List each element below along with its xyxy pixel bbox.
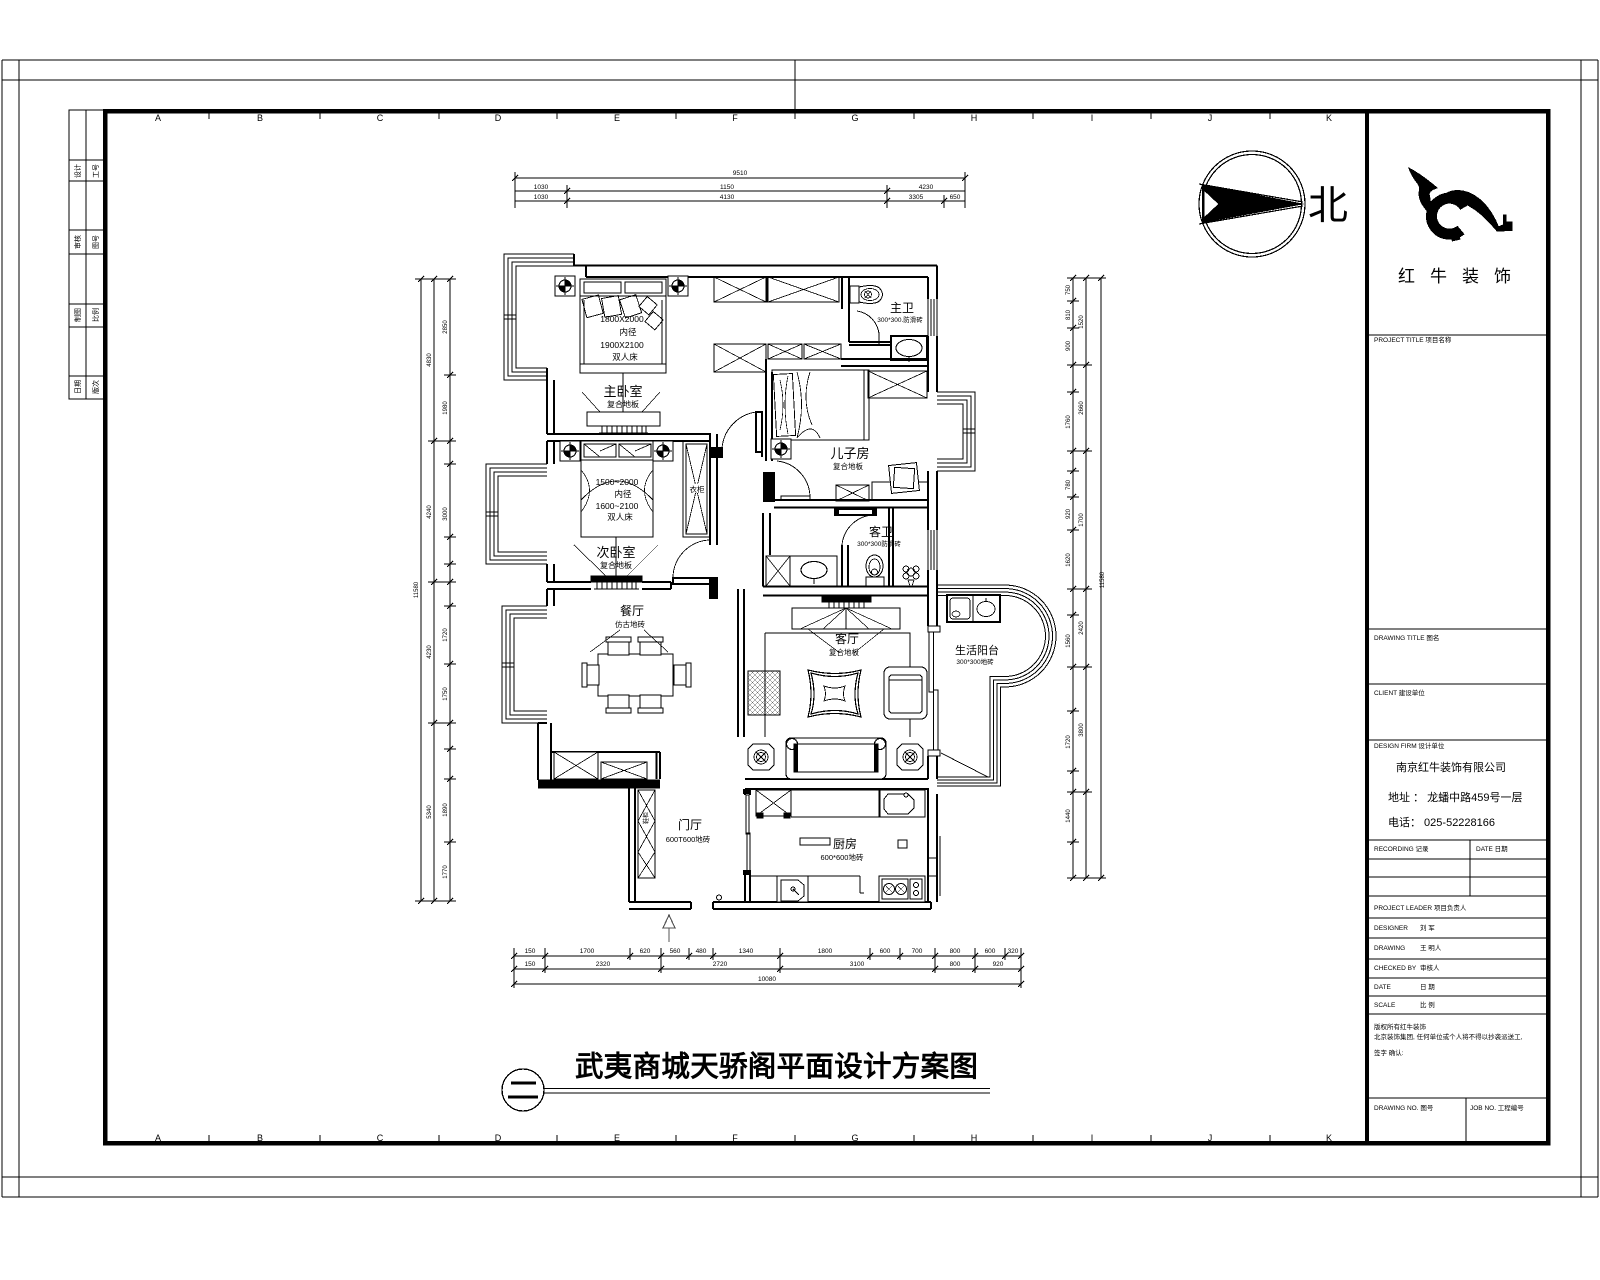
svg-text:北京装饰集团, 任何单位或个人将不得以抄袭派送工,: 北京装饰集团, 任何单位或个人将不得以抄袭派送工, — [1374, 1032, 1523, 1041]
svg-text:800: 800 — [950, 948, 961, 955]
svg-text:儿子房: 儿子房 — [830, 446, 869, 461]
svg-text:1440: 1440 — [1066, 809, 1072, 823]
svg-text:800: 800 — [950, 961, 961, 968]
svg-text:600: 600 — [880, 948, 891, 955]
svg-text:门厅: 门厅 — [678, 817, 702, 832]
svg-text:日 期: 日 期 — [1420, 983, 1435, 991]
svg-text:1700: 1700 — [580, 948, 595, 955]
svg-text:1600~2100: 1600~2100 — [596, 501, 639, 511]
svg-text:DRAWING TITLE 图名: DRAWING TITLE 图名 — [1374, 633, 1439, 642]
svg-text:1500~2000: 1500~2000 — [596, 477, 639, 487]
svg-text:1700: 1700 — [1079, 513, 1085, 527]
svg-text:600T600地砖: 600T600地砖 — [666, 834, 711, 844]
svg-text:DATE 日期: DATE 日期 — [1476, 845, 1508, 853]
svg-text:CLIENT 建设单位: CLIENT 建设单位 — [1374, 688, 1425, 697]
svg-text:H: H — [971, 113, 978, 123]
svg-text:700: 700 — [912, 948, 923, 955]
svg-text:4230: 4230 — [427, 645, 433, 659]
svg-text:K: K — [1326, 113, 1332, 123]
svg-text:签字 确认:: 签字 确认: — [1374, 1048, 1404, 1057]
svg-text:1760: 1760 — [1066, 415, 1072, 429]
svg-text:3000: 3000 — [443, 507, 449, 521]
svg-text:版权所有红牛装饰: 版权所有红牛装饰 — [1374, 1022, 1427, 1031]
svg-text:比 例: 比 例 — [1420, 1000, 1435, 1009]
svg-text:600: 600 — [985, 948, 996, 955]
svg-text:480: 480 — [696, 948, 707, 955]
svg-text:900: 900 — [1066, 340, 1072, 351]
svg-text:日期: 日期 — [74, 380, 82, 394]
svg-text:11580: 11580 — [1100, 571, 1106, 588]
svg-text:2720: 2720 — [713, 961, 728, 968]
svg-text:DRAWING: DRAWING — [1374, 945, 1405, 952]
svg-text:G: G — [851, 1133, 858, 1143]
svg-text:150: 150 — [525, 961, 536, 968]
svg-text:RECORDING 记录: RECORDING 记录 — [1374, 845, 1429, 853]
svg-text:南京红牛装饰有限公司: 南京红牛装饰有限公司 — [1396, 760, 1506, 774]
svg-text:刘 军: 刘 军 — [1420, 923, 1435, 932]
svg-text:F: F — [732, 113, 738, 123]
svg-text:11580: 11580 — [414, 581, 420, 598]
svg-text:D: D — [495, 113, 502, 123]
svg-text:1750: 1750 — [443, 687, 449, 701]
svg-text:1770: 1770 — [443, 865, 449, 879]
svg-text:C: C — [377, 113, 384, 123]
svg-text:衣柜: 衣柜 — [690, 484, 705, 494]
svg-text:主卫: 主卫 — [890, 301, 914, 315]
svg-text:1900X2100: 1900X2100 — [600, 340, 644, 350]
svg-text:CHECKED BY: CHECKED BY — [1374, 965, 1417, 972]
svg-text:1520: 1520 — [1079, 315, 1085, 329]
svg-text:300*300.防滑砖: 300*300.防滑砖 — [877, 315, 923, 324]
svg-text:920: 920 — [1066, 508, 1072, 519]
svg-text:比例: 比例 — [91, 308, 100, 322]
svg-text:PROJECT LEADER 项目负责人: PROJECT LEADER 项目负责人 — [1374, 903, 1467, 912]
svg-text:1560: 1560 — [1066, 634, 1072, 648]
svg-text:红牛装饰: 红牛装饰 — [1398, 267, 1526, 286]
svg-text:I: I — [1091, 113, 1094, 123]
svg-text:810: 810 — [1066, 309, 1072, 320]
svg-text:王 明人: 王 明人 — [1420, 944, 1442, 952]
svg-text:1620: 1620 — [1066, 553, 1072, 567]
svg-text:B: B — [257, 113, 263, 123]
svg-text:F: F — [732, 1133, 738, 1143]
svg-text:A: A — [155, 113, 161, 123]
svg-text:复合地板: 复合地板 — [829, 647, 859, 657]
svg-text:复合地板: 复合地板 — [833, 461, 863, 471]
svg-text:DESIGN FIRM 设计单位: DESIGN FIRM 设计单位 — [1374, 741, 1445, 750]
svg-text:1030: 1030 — [534, 184, 549, 191]
svg-text:150: 150 — [525, 948, 536, 955]
svg-text:版次: 版次 — [91, 380, 100, 394]
svg-text:D: D — [495, 1133, 502, 1143]
svg-text:3100: 3100 — [850, 961, 865, 968]
svg-text:双人床: 双人床 — [607, 512, 633, 522]
svg-text:4830: 4830 — [427, 353, 433, 367]
svg-text:SCALE: SCALE — [1374, 1002, 1396, 1009]
svg-text:1340: 1340 — [739, 948, 754, 955]
svg-text:4240: 4240 — [427, 505, 433, 519]
svg-text:K: K — [1326, 1133, 1332, 1143]
svg-text:E: E — [614, 113, 620, 123]
svg-text:DESIGNER: DESIGNER — [1374, 925, 1408, 932]
svg-text:920: 920 — [993, 961, 1004, 968]
svg-text:780: 780 — [1066, 479, 1072, 490]
svg-text:9510: 9510 — [733, 170, 748, 177]
svg-text:客厅: 客厅 — [835, 631, 859, 646]
svg-text:J: J — [1208, 1133, 1213, 1143]
svg-text:300*300地砖: 300*300地砖 — [956, 657, 994, 666]
svg-text:内径: 内径 — [619, 327, 637, 337]
svg-text:1800X2000: 1800X2000 — [600, 314, 644, 324]
svg-text:JOB NO. 工程编号: JOB NO. 工程编号 — [1470, 1103, 1524, 1112]
svg-text:1720: 1720 — [443, 628, 449, 642]
svg-text:3800: 3800 — [1079, 723, 1085, 737]
svg-text:C: C — [377, 1133, 384, 1143]
svg-text:620: 620 — [640, 948, 651, 955]
svg-text:DATE: DATE — [1374, 984, 1392, 991]
svg-text:2850: 2850 — [443, 320, 449, 334]
svg-text:制图: 制图 — [73, 308, 82, 322]
svg-text:1890: 1890 — [443, 803, 449, 817]
svg-text:武夷商城天骄阁平面设计方案图: 武夷商城天骄阁平面设计方案图 — [575, 1050, 978, 1083]
svg-text:5340: 5340 — [427, 805, 433, 819]
svg-text:300*300防滑砖: 300*300防滑砖 — [857, 539, 901, 548]
svg-text:H: H — [971, 1133, 978, 1143]
svg-text:设计: 设计 — [73, 164, 82, 178]
svg-text:北: 北 — [1308, 184, 1348, 228]
svg-text:工号: 工号 — [92, 164, 100, 178]
svg-text:1150: 1150 — [720, 184, 734, 191]
svg-text:餐厅: 餐厅 — [620, 603, 644, 618]
svg-text:DRAWING NO. 图号: DRAWING NO. 图号 — [1374, 1104, 1434, 1112]
svg-text:B: B — [257, 1133, 263, 1143]
svg-text:1720: 1720 — [1066, 735, 1072, 749]
svg-text:1800: 1800 — [818, 948, 833, 955]
svg-text:750: 750 — [1066, 284, 1072, 295]
svg-text:地址 ： 龙蟠中路459号一层: 地址 ： 龙蟠中路459号一层 — [1388, 790, 1522, 804]
svg-text:2320: 2320 — [596, 961, 611, 968]
svg-text:客卫: 客卫 — [869, 524, 893, 539]
svg-text:4130: 4130 — [720, 194, 735, 201]
svg-text:4230: 4230 — [919, 184, 934, 191]
svg-text:J: J — [1208, 113, 1213, 123]
svg-text:图号: 图号 — [92, 235, 100, 249]
svg-text:2660: 2660 — [1079, 401, 1085, 415]
svg-text:600*600地砖: 600*600地砖 — [821, 852, 864, 862]
svg-text:1980: 1980 — [443, 401, 449, 415]
svg-text:E: E — [614, 1133, 620, 1143]
svg-text:厨房: 厨房 — [833, 836, 857, 851]
svg-text:生活阳台: 生活阳台 — [955, 643, 999, 657]
svg-text:1030: 1030 — [534, 194, 549, 201]
svg-text:2420: 2420 — [1079, 621, 1085, 635]
svg-text:10080: 10080 — [758, 976, 776, 983]
svg-text:PROJECT TITLE 项目名称: PROJECT TITLE 项目名称 — [1374, 335, 1452, 344]
svg-text:鞋柜: 鞋柜 — [642, 812, 650, 824]
svg-text:3305: 3305 — [909, 194, 924, 201]
svg-text:320: 320 — [1008, 948, 1019, 955]
svg-text:电话： 025-52228166: 电话： 025-52228166 — [1388, 816, 1495, 829]
svg-text:650: 650 — [950, 194, 961, 201]
svg-text:I: I — [1091, 1133, 1094, 1143]
svg-text:审核人: 审核人 — [1420, 963, 1440, 972]
svg-text:仿古地砖: 仿古地砖 — [615, 619, 645, 629]
svg-text:560: 560 — [670, 948, 681, 955]
svg-text:内径: 内径 — [614, 489, 632, 499]
svg-text:双人床: 双人床 — [612, 352, 638, 362]
svg-text:审核: 审核 — [73, 235, 82, 249]
svg-text:G: G — [851, 113, 858, 123]
svg-text:A: A — [155, 1133, 161, 1143]
